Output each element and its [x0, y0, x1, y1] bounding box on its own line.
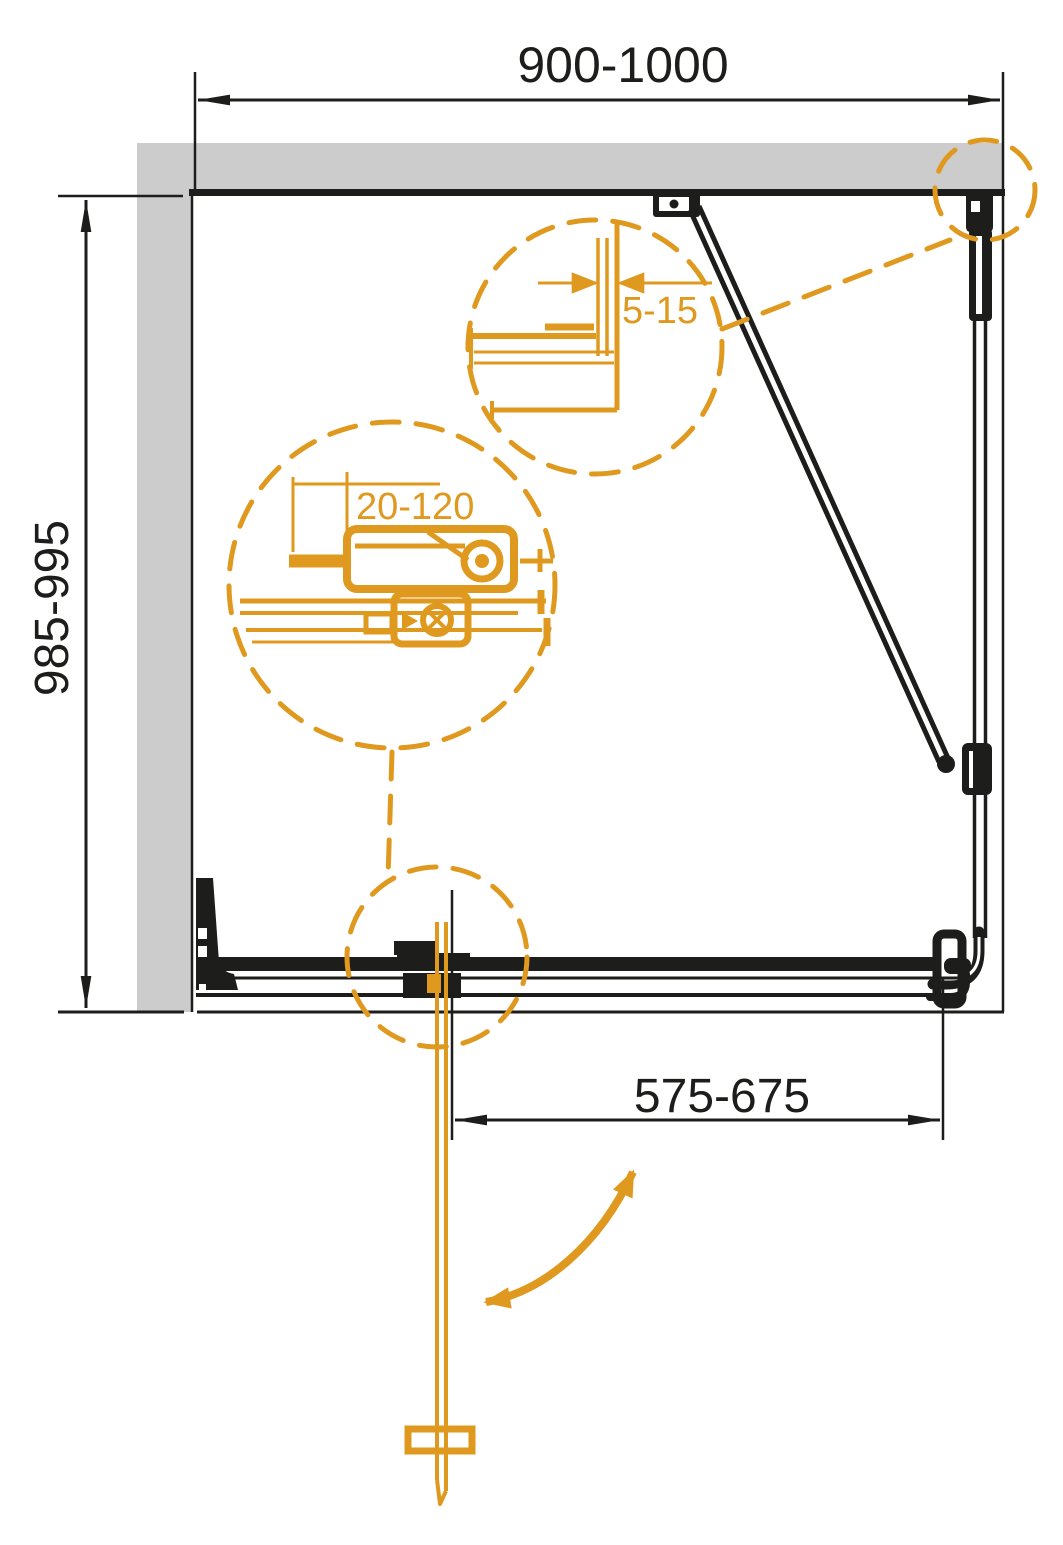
wall-top — [137, 143, 1003, 192]
wall-left — [137, 143, 192, 1012]
detail-leader-line — [722, 240, 950, 329]
door-carriage — [394, 941, 435, 955]
fixed-panel-right — [930, 196, 993, 997]
door-carriage — [397, 953, 470, 971]
overall-depth-label: 985-995 — [26, 520, 79, 696]
wall-profile-adjust-label: 5-15 — [622, 290, 698, 332]
roller-adjust-label: 20-120 — [356, 486, 474, 528]
support-bar-end — [937, 755, 955, 773]
top-wall-profile-line — [189, 189, 1005, 196]
support-bar-glass-clamp — [962, 743, 992, 795]
detail-callouts — [229, 140, 1035, 1047]
detail-roller: 20-120 — [240, 472, 553, 646]
overall-width-label: 900-1000 — [517, 37, 728, 93]
detail-leader-line — [388, 752, 392, 878]
detail-circle-wall-profile — [468, 220, 722, 474]
installation-diagram: 900-1000 985-995 — [0, 0, 1063, 1545]
dimension-door-opening: 575-675 — [452, 890, 943, 1140]
door-handle — [408, 1429, 472, 1451]
door-swing-arrow — [486, 1172, 633, 1302]
door-open-position — [408, 922, 633, 1504]
support-bar — [653, 191, 955, 773]
bracket-pivot-dot — [670, 200, 679, 209]
bottom-rail — [196, 878, 971, 1004]
door-opening-label: 575-675 — [634, 1070, 810, 1123]
rail-bar — [196, 957, 941, 971]
